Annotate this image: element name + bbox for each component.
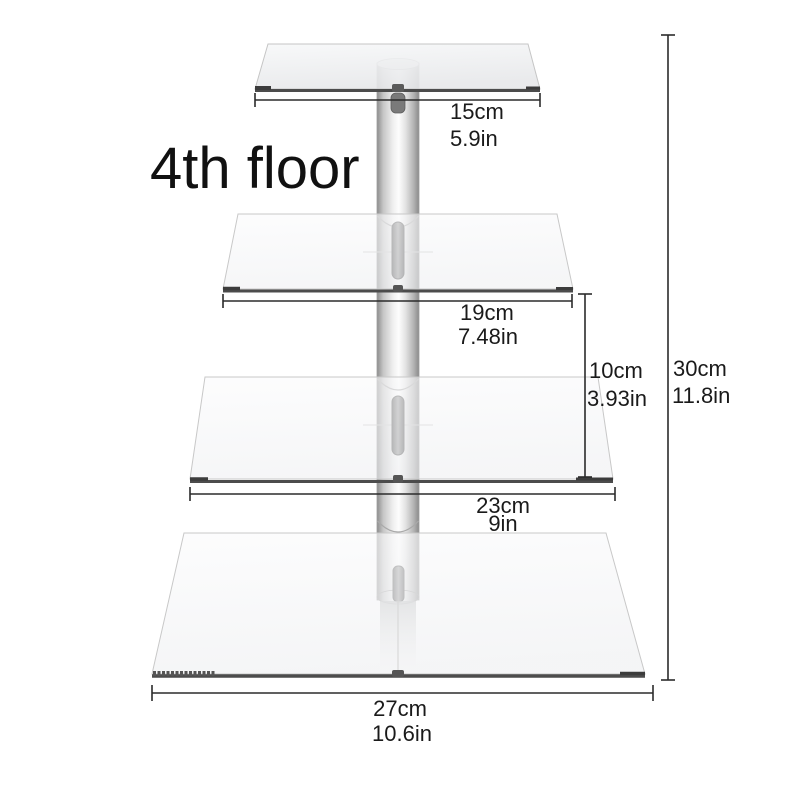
pole-connector-nub [391, 93, 405, 113]
tier3-width-in-label: 9in [488, 511, 517, 536]
tier-spacing-cm-label: 10cm [589, 358, 643, 383]
tier-2-plate [223, 214, 573, 292]
plate-center-connector [393, 285, 403, 292]
stand-diagram-svg: 15cm 5.9in 19cm 7.48in 10cm 3.93in [0, 0, 800, 800]
base-width-cm-label: 27cm [373, 696, 427, 721]
tier1-width-in-label: 5.9in [450, 126, 498, 151]
dim-total-height: 30cm 11.8in [661, 35, 730, 680]
plate-center-connector [392, 670, 404, 677]
dim-base-width: 27cm 10.6in [152, 685, 653, 746]
total-height-cm-label: 30cm [673, 356, 727, 381]
stand-pole [377, 63, 419, 600]
total-height-in-label: 11.8in [672, 383, 730, 408]
plate-center-connector [392, 84, 404, 92]
plate-center-connector [393, 475, 403, 483]
tier2-width-cm-label: 19cm [460, 300, 514, 325]
tier1-width-cm-label: 15cm [450, 99, 504, 124]
tier-1-plate [255, 44, 540, 92]
floor-count-title: 4th floor [150, 136, 360, 201]
product-dimension-diagram: 15cm 5.9in 19cm 7.48in 10cm 3.93in [0, 0, 800, 800]
tier-spacing-in-label: 3.93in [587, 386, 647, 411]
base-plate [152, 533, 645, 677]
base-width-in-label: 10.6in [372, 721, 432, 746]
tier2-width-in-label: 7.48in [458, 324, 518, 349]
tier-3-plate [190, 377, 613, 483]
